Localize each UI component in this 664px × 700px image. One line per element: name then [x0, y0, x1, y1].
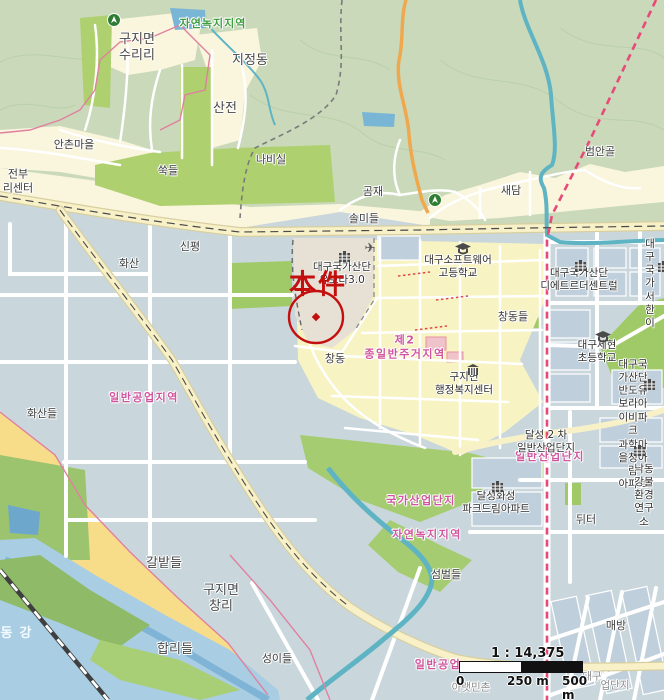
subject-annotation-text: 本件 — [289, 263, 347, 302]
scale-bar — [459, 661, 583, 673]
scale-bar-black-segment — [521, 662, 582, 672]
map-canvas[interactable] — [0, 0, 664, 700]
pink-block — [426, 337, 446, 350]
scale-bar-white-segment — [460, 662, 521, 672]
scale-label-mid: 250 m — [507, 674, 549, 688]
map-viewport[interactable]: 구지면 수리리자연녹지지역지정동산전안촌마을쑥들나비실곰재솔미들새담범안골전부 … — [0, 0, 664, 700]
scale-label-end: 500 m — [562, 674, 599, 700]
pond — [362, 112, 395, 127]
scale-ratio: 1 : 14,375 — [491, 646, 564, 661]
scale-label-start: 0 — [456, 674, 464, 688]
